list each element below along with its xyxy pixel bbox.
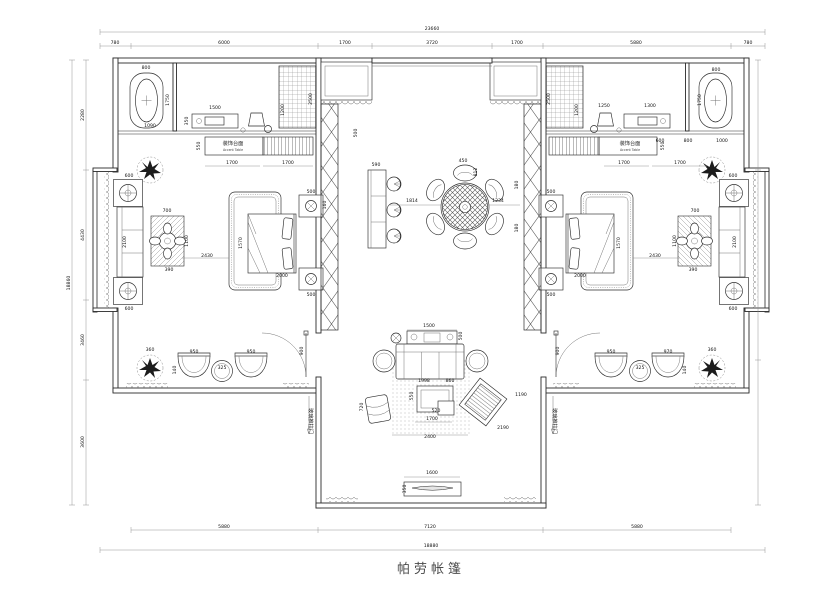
dim-label: 1700 — [426, 416, 438, 422]
dim-label: 360 — [146, 347, 155, 353]
dim-label: 350 — [184, 117, 190, 126]
dim-label: 2500 — [308, 93, 314, 105]
dim-label: 2100 — [732, 236, 738, 248]
dim-label: 23660 — [425, 26, 440, 32]
dim-label: 500 — [547, 292, 556, 298]
dim-label: 1200 — [574, 104, 580, 116]
dim-label: 6000 — [218, 40, 230, 46]
tv-console — [404, 482, 461, 496]
dim-label: 3720 — [426, 40, 438, 46]
dim-label: 1814 — [406, 198, 418, 204]
dim-label: 1500 — [423, 323, 435, 329]
dim-label: 140 — [682, 366, 688, 375]
dim-label: 2430 — [201, 253, 213, 259]
dim-label: 500 — [547, 189, 556, 195]
dim-label: 1000 — [716, 138, 728, 144]
dim-label: 3460 — [80, 334, 86, 346]
dim-label: 900 — [299, 347, 305, 356]
floor-lamp-cross — [393, 335, 399, 341]
right-wing-mirror — [490, 58, 769, 508]
dim-label: 360 — [708, 347, 717, 353]
dim-label: 720 — [359, 403, 365, 412]
dim-label: 2400 — [424, 434, 436, 440]
dim-label: 5880 — [630, 40, 642, 46]
dim-label: 550 — [196, 142, 202, 151]
text-label: Accent Table — [620, 148, 640, 152]
dim-label: 3600 — [80, 436, 86, 448]
text-label: 装饰台面 — [223, 139, 244, 147]
dim-label: 1090 — [144, 123, 156, 129]
dim-label: 2500 — [546, 93, 552, 105]
dim-label: 390 — [689, 267, 698, 273]
lounge-chair — [365, 394, 391, 423]
dim-label: 550 — [660, 142, 666, 151]
dim-label: 1700 — [618, 160, 630, 166]
dim-label: 700 — [163, 208, 172, 214]
dim-label: 1190 — [515, 392, 527, 398]
dim-label: 500 — [307, 189, 316, 195]
curtain-track — [326, 497, 358, 502]
dim-label: 950 — [247, 349, 256, 355]
dim-label: 590 — [372, 162, 381, 168]
dim-label: 600 — [125, 173, 134, 179]
dim-label: 860 — [446, 378, 455, 384]
dim-label: 7120 — [424, 524, 436, 530]
dim-label: 2000 — [276, 273, 288, 279]
dim-label: 18880 — [424, 543, 439, 549]
text-label: 装饰台面 — [620, 139, 641, 147]
dim-label: 1500 — [209, 105, 221, 111]
dimension-annotations: 2366078060001700372017005880780588071205… — [66, 26, 752, 549]
dim-label: 160 — [322, 201, 328, 210]
dim-label: 1600 — [426, 470, 438, 476]
entry-threshold — [372, 58, 492, 63]
bar-stool — [387, 229, 401, 243]
dim-label: 2100 — [122, 236, 128, 248]
dim-label: 1700 — [339, 40, 351, 46]
dim-label: 600 — [729, 306, 738, 312]
dim-label: 5880 — [631, 524, 643, 530]
dim-label: 970 — [664, 349, 673, 355]
dim-label: 500 — [458, 332, 464, 341]
text-label: 玻璃推拉门 — [551, 408, 559, 434]
dim-label: 550 — [409, 392, 415, 401]
dim-label: 2000 — [574, 273, 586, 279]
dim-label: 500 — [307, 292, 316, 298]
dim-label: 900 — [555, 347, 561, 356]
dim-label: 450 — [459, 158, 468, 164]
floor-plan-sheet: 帕劳帐篷 23660780600017003720170058807805880… — [0, 0, 837, 592]
dim-label: 1700 — [511, 40, 523, 46]
dim-label: 950 — [190, 349, 199, 355]
dim-label: 800 — [684, 138, 693, 144]
bar-stool — [387, 177, 401, 191]
lounge-chair-frame — [365, 394, 391, 423]
dim-label: 2190 — [497, 425, 509, 431]
dining-chair — [454, 233, 477, 249]
curtain-track — [504, 497, 536, 502]
wall-hall-bottom — [316, 503, 546, 508]
dim-label: 950 — [607, 349, 616, 355]
dim-label: 2430 — [649, 253, 661, 259]
dim-label: 600 — [729, 173, 738, 179]
dim-label: 1570 — [616, 237, 622, 249]
dim-label: 800 — [712, 67, 721, 73]
armchair-cushion — [465, 384, 501, 420]
floor-plan-drawing: 帕劳帐篷 23660780600017003720170058807805880… — [0, 0, 837, 592]
dim-label: 180 — [514, 224, 520, 233]
dim-label: 1700 — [674, 160, 686, 166]
dim-label: 1750 — [697, 94, 703, 106]
dim-label: 1700 — [226, 160, 238, 166]
dim-label: 1250 — [598, 103, 610, 109]
dim-label: 1300 — [644, 103, 656, 109]
drawing-title: 帕劳帐篷 — [397, 561, 465, 577]
dim-label: 500 — [353, 129, 359, 138]
dim-label: 1700 — [282, 160, 294, 166]
dim-label: 325 — [636, 365, 645, 371]
dim-label: 1570 — [238, 237, 244, 249]
text-label: Accent Table — [223, 148, 243, 152]
left-wing — [93, 58, 372, 508]
dim-label: 1200 — [280, 104, 286, 116]
bar-counter — [368, 170, 386, 248]
dim-label: 520 — [432, 408, 441, 414]
dim-label: 390 — [165, 267, 174, 273]
dining-set — [423, 165, 507, 249]
dim-label: 780 — [744, 40, 753, 46]
dim-label: 812 — [473, 168, 479, 177]
dim-label: 1998 — [418, 378, 430, 384]
dim-label: 140 — [172, 366, 178, 375]
dim-label: 800 — [142, 65, 151, 71]
text-label: 玻璃推拉门 — [307, 408, 315, 434]
dim-label: 180 — [514, 181, 520, 190]
sofa-side-table — [373, 350, 395, 372]
sofa-side-table — [466, 350, 488, 372]
nesting-table — [438, 401, 454, 415]
dim-label: 1750 — [165, 94, 171, 106]
dining-table-center — [460, 202, 471, 213]
dim-label: 600 — [125, 306, 134, 312]
dim-label: 1100 — [184, 235, 190, 247]
dim-label: 2280 — [80, 109, 86, 121]
dim-label: 325 — [218, 365, 227, 371]
dim-label: 5880 — [218, 524, 230, 530]
dim-label: 1100 — [672, 235, 678, 247]
dim-label: 780 — [111, 40, 120, 46]
dim-label: 350 — [402, 485, 408, 494]
dim-label: 1234 — [492, 198, 504, 204]
sofa — [396, 344, 464, 379]
dim-label: 18860 — [66, 276, 72, 291]
dim-label: 700 — [691, 208, 700, 214]
dim-label: 4430 — [80, 229, 86, 241]
